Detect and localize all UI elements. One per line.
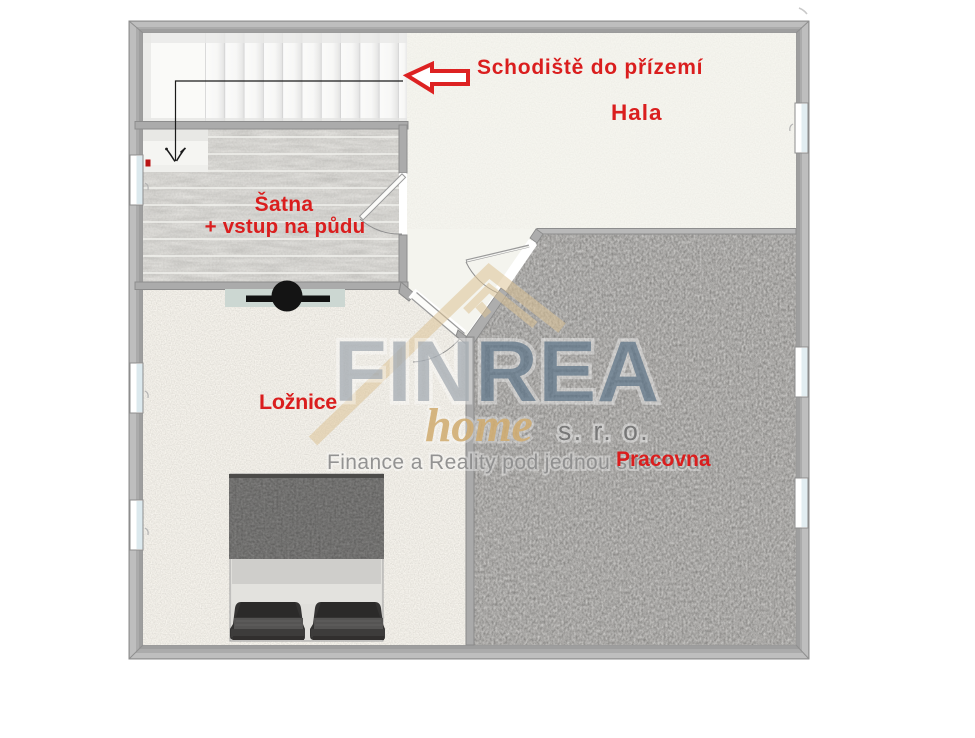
svg-text:Pracovna: Pracovna xyxy=(616,448,711,471)
svg-text:Hala: Hala xyxy=(611,100,663,125)
svg-text:home: home xyxy=(425,399,533,452)
svg-text:+ vstup na půdu: + vstup na půdu xyxy=(205,215,366,238)
svg-text:s. r. o.: s. r. o. xyxy=(558,416,650,446)
svg-text:Ložnice: Ložnice xyxy=(259,390,337,414)
svg-text:Šatna: Šatna xyxy=(255,192,314,216)
svg-text:Schodiště do přízemí: Schodiště do přízemí xyxy=(477,56,704,79)
